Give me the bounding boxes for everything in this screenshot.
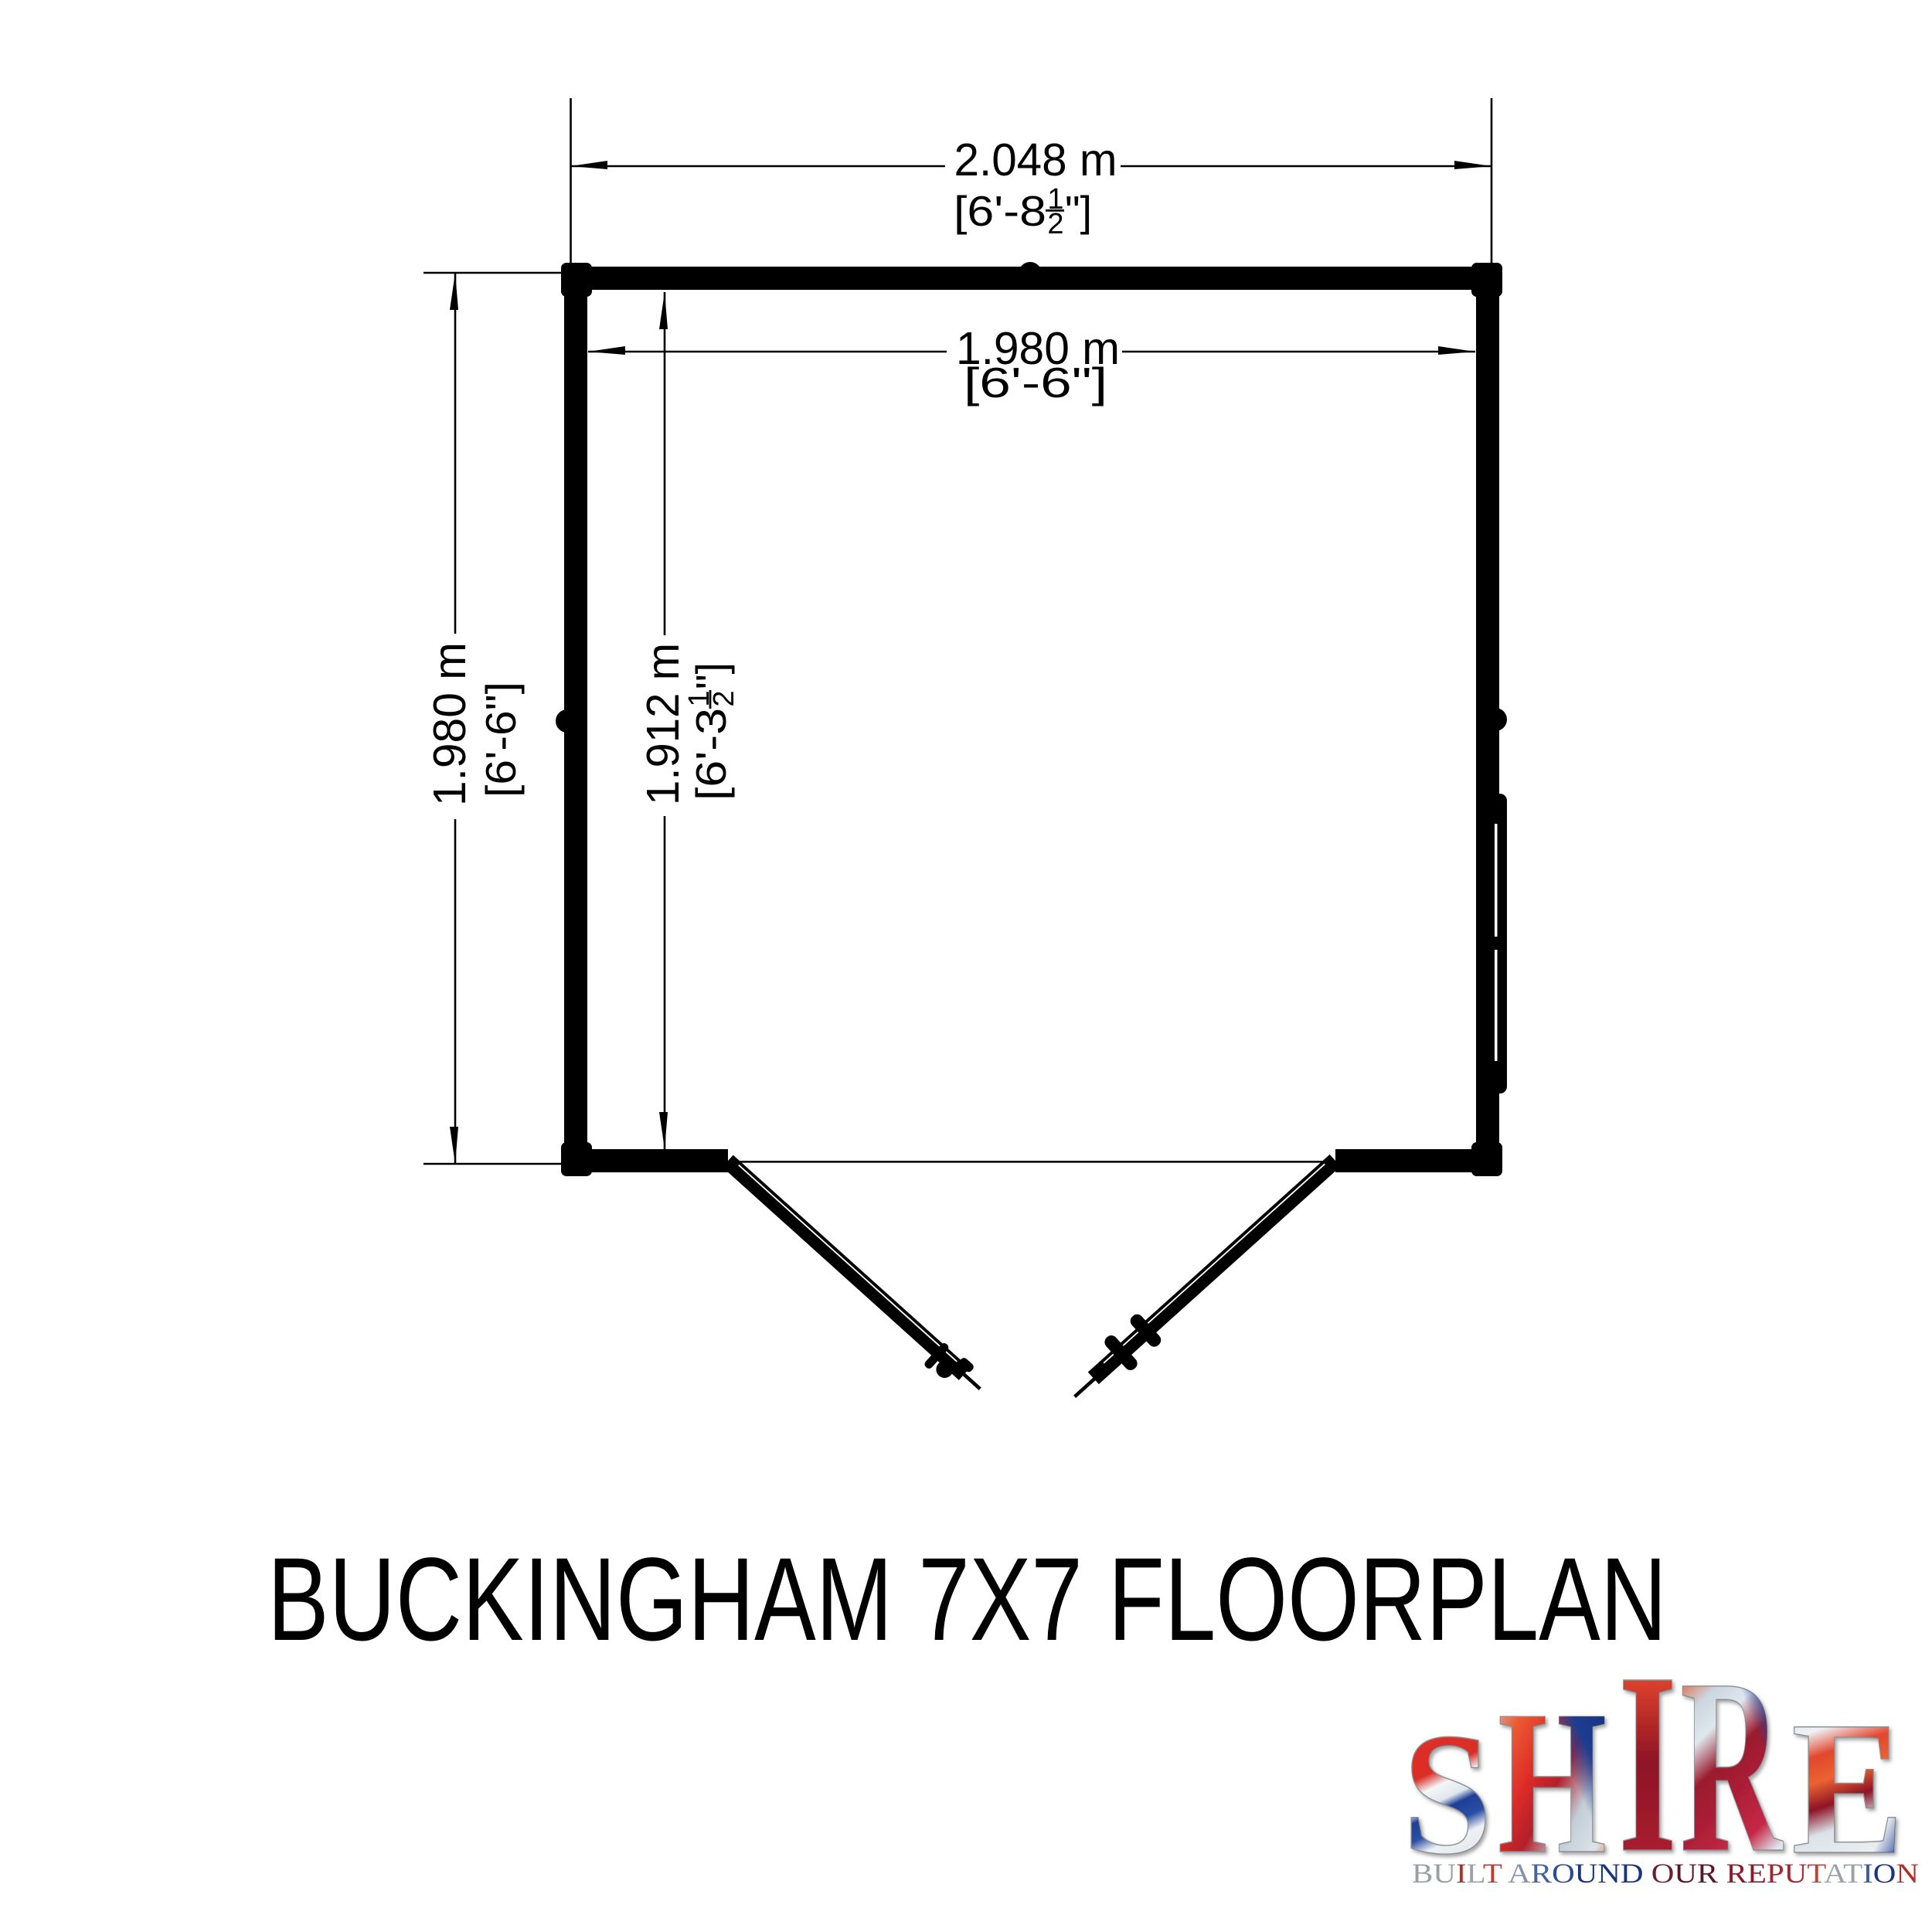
svg-text:[6'-8: [6'-8 (954, 187, 1046, 235)
svg-text:2: 2 (1047, 208, 1063, 240)
svg-text:BUILT AROUND OUR REPUTATION: BUILT AROUND OUR REPUTATION (1412, 1858, 1919, 1889)
svg-text:"]: "] (687, 662, 735, 689)
svg-text:BUCKINGHAM 7X7 FLOORPLAN: BUCKINGHAM 7X7 FLOORPLAN (267, 1533, 1667, 1665)
svg-text:2: 2 (708, 690, 740, 706)
svg-text:[6'-3: [6'-3 (687, 708, 735, 801)
svg-text:"]: "] (1065, 187, 1092, 235)
svg-text:1.912 m: 1.912 m (638, 643, 689, 805)
svg-text:[6'-6"]: [6'-6"] (964, 359, 1107, 406)
svg-text:2.048 m: 2.048 m (954, 134, 1117, 185)
svg-text:[6'-6"]: [6'-6"] (477, 682, 525, 798)
svg-text:1.980 m: 1.980 m (424, 642, 475, 806)
